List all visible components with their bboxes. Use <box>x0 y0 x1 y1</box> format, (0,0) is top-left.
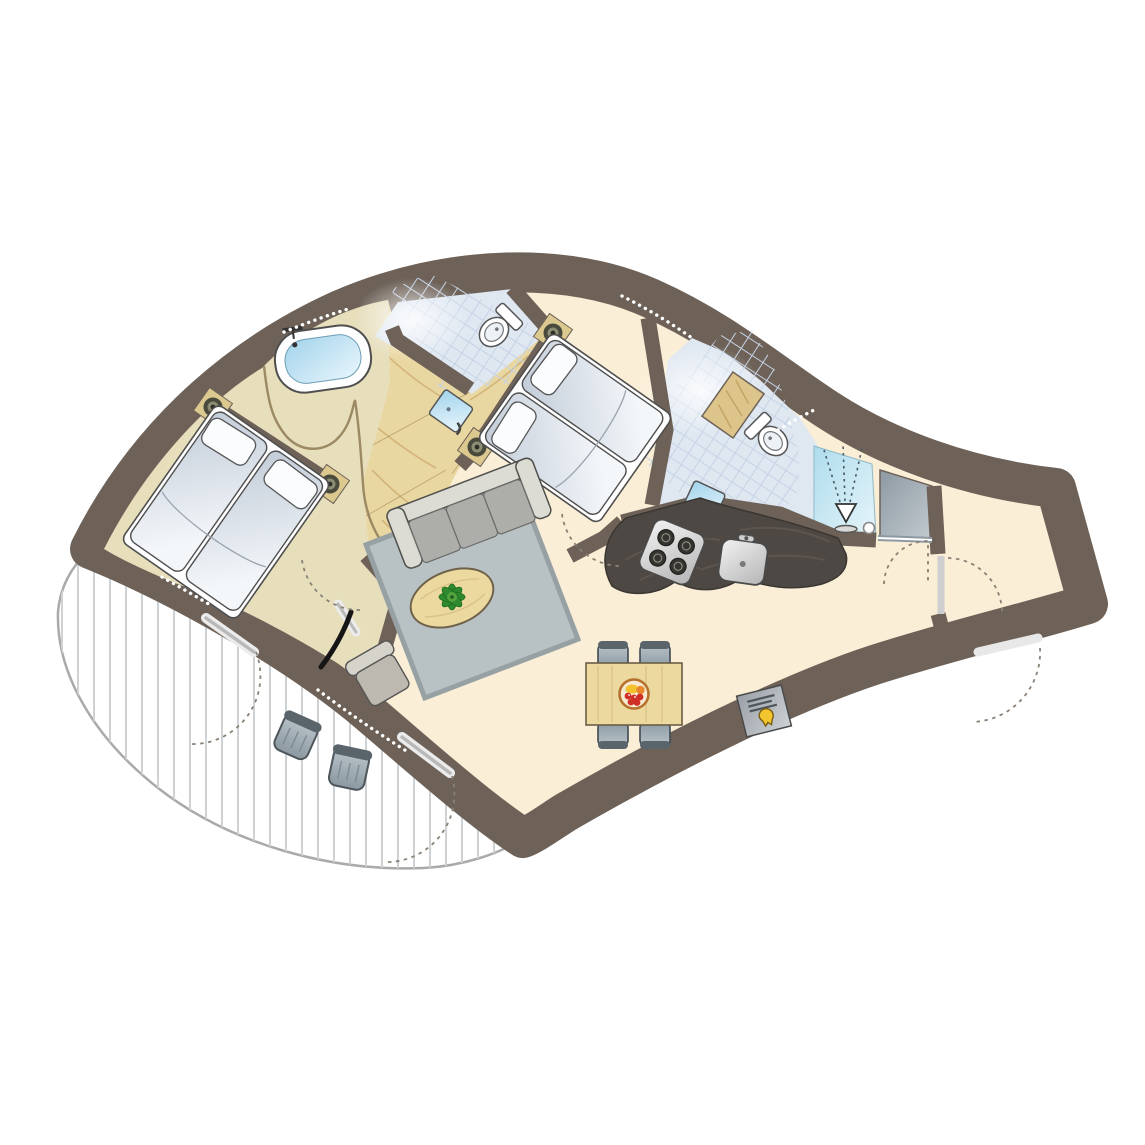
floor-plan-canvas <box>0 0 1145 1145</box>
arc-front-door <box>972 648 1040 722</box>
fruit-bowl <box>620 680 649 709</box>
plant <box>439 584 465 610</box>
shower-base <box>835 526 857 533</box>
shower-drain <box>864 523 875 534</box>
wall-entry-lower <box>938 614 946 644</box>
floor-plan-page <box>0 0 1145 1145</box>
wardrobe-window-sill <box>878 538 932 540</box>
wall-entry-upper <box>934 486 938 554</box>
